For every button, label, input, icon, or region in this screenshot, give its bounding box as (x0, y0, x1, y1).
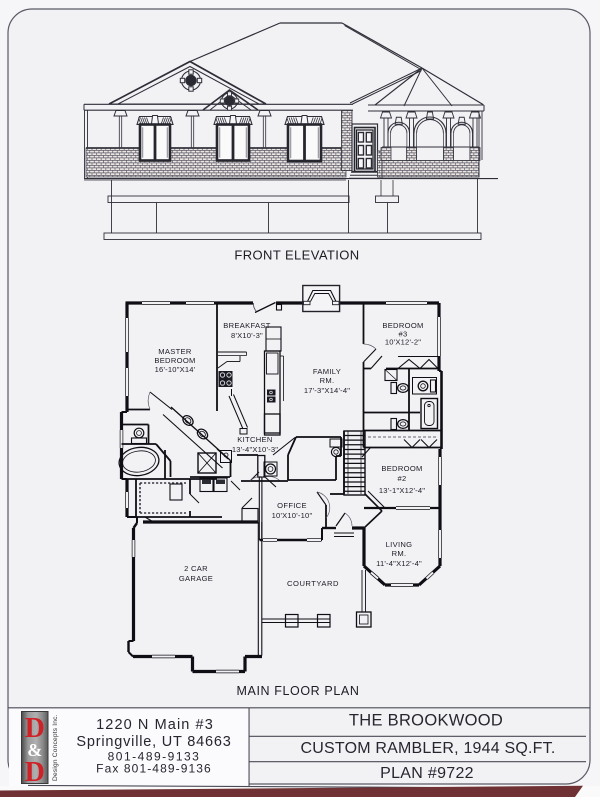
svg-text:D: D (25, 757, 45, 788)
svg-text:10'X12'-2": 10'X12'-2" (385, 338, 421, 347)
svg-text:BEDROOM: BEDROOM (154, 356, 195, 365)
svg-text:MASTER: MASTER (158, 347, 192, 356)
svg-text:#2: #2 (397, 474, 406, 483)
svg-text:LIVING: LIVING (386, 540, 413, 549)
svg-text:1220 N Main #3: 1220 N Main #3 (96, 717, 214, 733)
svg-text:FAMILY: FAMILY (313, 367, 341, 376)
svg-text:10'X10'-10": 10'X10'-10" (272, 511, 313, 520)
svg-text:CUSTOM RAMBLER, 1944 SQ.FT.: CUSTOM RAMBLER, 1944 SQ.FT. (301, 740, 556, 757)
svg-text:FRONT ELEVATION: FRONT ELEVATION (234, 248, 359, 263)
svg-text:13'-1"X12'-4": 13'-1"X12'-4" (379, 486, 425, 495)
svg-text:OFFICE: OFFICE (277, 501, 307, 510)
svg-text:Design Concepts Inc.: Design Concepts Inc. (52, 714, 59, 781)
svg-text:11'-4"X12'-4": 11'-4"X12'-4" (376, 559, 422, 568)
svg-text:BEDROOM: BEDROOM (381, 464, 422, 473)
svg-text:THE BROOKWOOD: THE BROOKWOOD (349, 712, 503, 730)
svg-text:13'-4"X10'-3": 13'-4"X10'-3" (232, 445, 278, 454)
svg-text:RM.: RM. (392, 549, 407, 558)
svg-text:COURTYARD: COURTYARD (287, 579, 339, 588)
svg-text:KITCHEN: KITCHEN (237, 435, 272, 444)
svg-text:GARAGE: GARAGE (179, 574, 213, 583)
svg-text:Springville, UT 84663: Springville, UT 84663 (76, 734, 231, 750)
svg-text:BREAKFAST: BREAKFAST (223, 321, 270, 330)
svg-text:MAIN FLOOR PLAN: MAIN FLOOR PLAN (237, 684, 360, 698)
svg-text:8'X10'-3": 8'X10'-3" (231, 331, 263, 340)
svg-text:2 CAR: 2 CAR (184, 564, 208, 573)
svg-text:RM.: RM. (320, 376, 335, 385)
svg-text:Fax 801-489-9136: Fax 801-489-9136 (96, 762, 212, 776)
svg-text:17'-3"X14'-4": 17'-3"X14'-4" (304, 386, 350, 395)
svg-text:16'-10"X14': 16'-10"X14' (155, 365, 196, 374)
svg-text:PLAN #9722: PLAN #9722 (380, 765, 474, 782)
